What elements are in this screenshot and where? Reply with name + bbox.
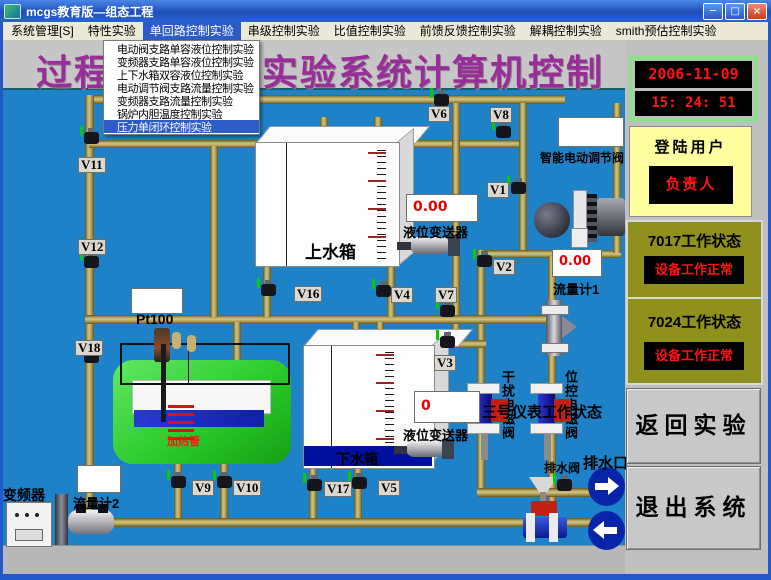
valve-v6-icon[interactable] xyxy=(434,94,449,106)
valve-v11-icon[interactable] xyxy=(84,132,99,144)
meter-status-text: 三号仪表工作状态 xyxy=(482,401,602,422)
menu-cascade[interactable]: 串级控制实验 xyxy=(241,22,327,40)
valve-v7-icon[interactable] xyxy=(440,305,455,317)
boiler-frame xyxy=(120,343,290,385)
menu-decoupling[interactable]: 解耦控制实验 xyxy=(523,22,609,40)
valve-v17-icon[interactable] xyxy=(307,479,322,491)
floor xyxy=(0,545,625,575)
pipe-segment xyxy=(210,146,218,317)
flow-meter1-cone xyxy=(562,316,577,338)
lower-tank-label: 下水箱 xyxy=(336,449,378,469)
back-to-experiment-button[interactable]: 返回实验 xyxy=(626,388,761,464)
inflow-indicator xyxy=(588,511,625,550)
valve-label-v9: V9 xyxy=(192,480,214,496)
login-user-value: 负责人 xyxy=(649,166,733,204)
flow-meter1-flange xyxy=(541,305,569,315)
minimize-button[interactable]: ─ xyxy=(703,3,723,20)
flow1-label: 流量计1 xyxy=(553,279,599,298)
valve-v12-icon[interactable] xyxy=(84,256,99,268)
valve-label-v6: V6 xyxy=(428,106,450,122)
maximize-button[interactable]: □ xyxy=(725,3,745,20)
flow-meter1-flange xyxy=(541,343,569,353)
valve-v8-icon[interactable] xyxy=(496,126,511,138)
window-controls: ─ □ × xyxy=(701,3,771,20)
app-icon xyxy=(4,4,21,19)
valve-label-v4: V4 xyxy=(391,287,413,303)
lower-tank-scale-major xyxy=(376,354,394,448)
drain-outlet-label: 排水口 xyxy=(583,452,628,473)
pt100-label: Pt100 xyxy=(136,311,173,327)
sensor-rod xyxy=(187,335,196,352)
pt100-probe xyxy=(161,344,166,422)
flow-meter2-icon xyxy=(68,510,114,534)
valve-label-v10: V10 xyxy=(233,480,261,496)
valve-label-v7: V7 xyxy=(435,287,457,303)
window-border-left xyxy=(0,22,3,574)
valve-v2-icon[interactable] xyxy=(477,255,492,267)
valve-v9-icon[interactable] xyxy=(171,476,186,488)
pipe-segment xyxy=(309,465,317,522)
riser-pipe xyxy=(55,494,68,545)
valve-label-v12: V12 xyxy=(78,239,106,255)
single-loop-dropdown: 电动阀支路单容液位控制实验 变频器支路单容液位控制实验 上下水箱双容液位控制实验… xyxy=(103,40,260,135)
solenoid-flange xyxy=(530,423,563,434)
valve-label-v16: V16 xyxy=(294,286,322,302)
valve-label-v3: V3 xyxy=(434,355,456,371)
menu-feedforward[interactable]: 前馈反馈控制实验 xyxy=(413,22,523,40)
valve-v16-icon[interactable] xyxy=(261,284,276,296)
arrow-left-icon xyxy=(593,521,604,539)
close-button[interactable]: × xyxy=(747,3,767,20)
window-titlebar[interactable]: mcgs教育版—组态工程 ─ □ × xyxy=(0,0,771,22)
heater-label: 加热管 xyxy=(167,433,200,449)
flow2-display xyxy=(77,465,121,493)
inverter-leds xyxy=(15,513,19,517)
solenoid-flange xyxy=(530,383,563,394)
pump-flange xyxy=(526,513,535,542)
login-widget: 登陆用户 负责人 xyxy=(629,126,752,217)
menu-characteristic[interactable]: 特性实验 xyxy=(81,22,143,40)
window-title: mcgs教育版—组态工程 xyxy=(26,3,153,20)
solenoid-flange xyxy=(467,423,500,434)
valve-v10-icon[interactable] xyxy=(217,476,232,488)
date-display: 2006-11-09 xyxy=(635,61,752,88)
valve-label-v8: V8 xyxy=(490,107,512,123)
sensor-rod xyxy=(172,332,181,349)
pipe-segment xyxy=(220,458,228,522)
valve-wheel-icon xyxy=(534,202,570,238)
valve-v1-icon[interactable] xyxy=(511,182,526,194)
time-display: 15: 24: 51 xyxy=(635,91,752,116)
smart-valve-display xyxy=(558,117,624,147)
clock-widget: 2006-11-09 15: 24: 51 xyxy=(629,56,758,122)
menu-bar: 系统管理[S] 特性实验 单回路控制实验 串级控制实验 比值控制实验 前馈反馈控… xyxy=(0,22,771,41)
boiler-inner-tank xyxy=(132,380,271,414)
window-border-bottom xyxy=(0,574,771,580)
arrow-right-icon xyxy=(595,483,608,490)
status-7017-label: 7017工作状态 xyxy=(628,230,761,251)
boiler-water xyxy=(134,410,264,427)
upper-tank-scale-major xyxy=(368,152,386,260)
inverter-slot xyxy=(15,529,43,541)
solenoid-stem xyxy=(544,432,551,460)
status-7024-label: 7024工作状态 xyxy=(628,311,761,332)
valve-label-v5: V5 xyxy=(378,480,400,496)
menu-ratio[interactable]: 比值控制实验 xyxy=(327,22,413,40)
pump-flange xyxy=(549,513,558,542)
arrow-left-icon xyxy=(604,527,617,534)
page-title-left: 过程 xyxy=(36,44,112,96)
menu-smith[interactable]: smith预估控制实验 xyxy=(609,22,724,40)
page-title-right: 实验系统计算机控制 xyxy=(262,44,604,96)
upper-level-display: 0.00 xyxy=(406,194,478,222)
tank-seam xyxy=(286,143,287,266)
flow2-label: 流量计2 xyxy=(73,493,119,512)
valve-label-v17: V17 xyxy=(324,481,352,497)
pipe-segment xyxy=(174,458,182,522)
valve-label-v18: V18 xyxy=(75,340,103,356)
valve-flange-stack xyxy=(587,194,597,242)
valve-label-v11: V11 xyxy=(78,157,106,173)
valve-v5-icon[interactable] xyxy=(352,477,367,489)
valve-v4-icon[interactable] xyxy=(376,285,391,297)
exit-system-button[interactable]: 退出系统 xyxy=(626,466,761,550)
valve-v3-icon[interactable] xyxy=(440,336,455,348)
arrow-right-icon xyxy=(608,477,619,495)
inverter-icon xyxy=(6,502,52,547)
transmitter-nozzle xyxy=(397,242,411,250)
solenoid-stem xyxy=(481,432,488,460)
drain-valve-icon[interactable] xyxy=(557,479,572,491)
status-7024-value: 设备工作正常 xyxy=(644,342,744,370)
transmitter-nozzle xyxy=(394,446,407,454)
dropdown-item-pressure-loop[interactable]: 压力单闭环控制实验 xyxy=(104,120,259,133)
valve-junction-box xyxy=(571,228,588,248)
status-7024-widget: 7024工作状态 设备工作正常 xyxy=(626,297,763,385)
login-label: 登陆用户 xyxy=(630,136,751,157)
valve-label-v2: V2 xyxy=(493,259,515,275)
menu-single-loop[interactable]: 单回路控制实验 xyxy=(143,22,241,40)
status-7017-value: 设备工作正常 xyxy=(644,256,744,284)
flow1-display: 0.00 xyxy=(552,249,602,277)
menu-system[interactable]: 系统管理[S] xyxy=(4,22,81,40)
smart-valve-label: 智能电动调节阀 xyxy=(540,149,624,166)
drain-valve-label: 排水阀 xyxy=(544,459,580,476)
valve-label-v1: V1 xyxy=(487,182,509,198)
inverter-label: 变频器 xyxy=(3,485,45,505)
valve-motor-icon xyxy=(597,198,625,236)
lower-level-tx-label: 液位变送器 xyxy=(403,425,468,444)
upper-level-tx-label: 液位变送器 xyxy=(403,222,468,241)
mcgs-window: mcgs教育版—组态工程 ─ □ × 系统管理[S] 特性实验 单回路控制实验 … xyxy=(0,0,771,580)
lower-level-display: 0 xyxy=(414,391,480,423)
upper-tank-label: 上水箱 xyxy=(305,238,356,263)
status-7017-widget: 7017工作状态 设备工作正常 xyxy=(626,220,763,301)
